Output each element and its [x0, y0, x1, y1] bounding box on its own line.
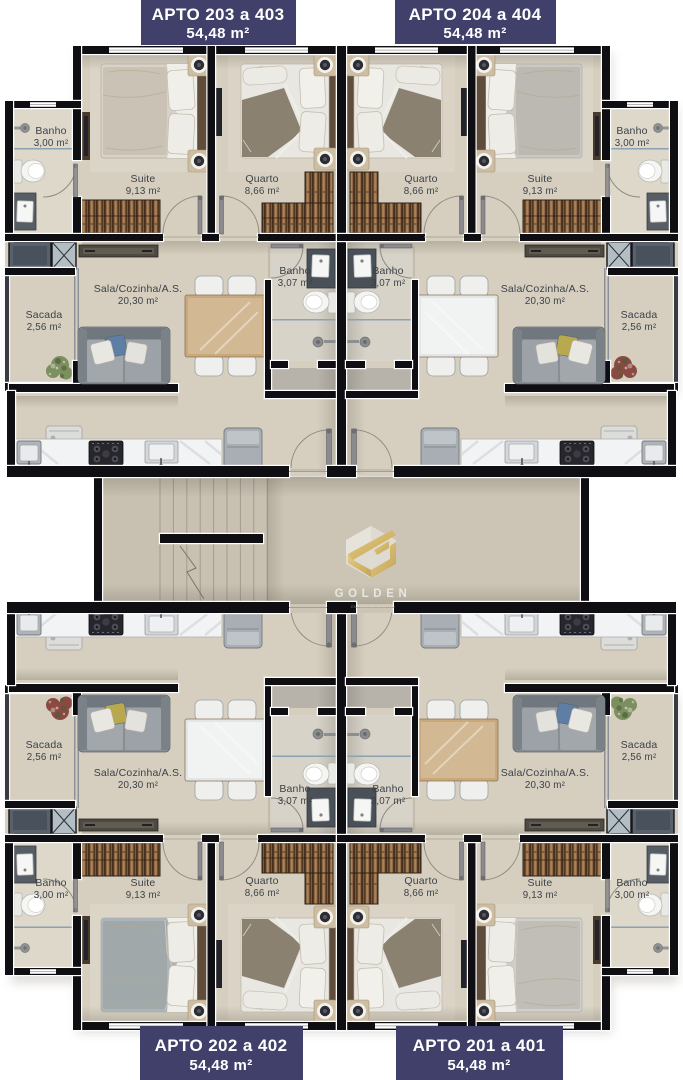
svg-text:20,30 m²: 20,30 m² — [525, 780, 566, 791]
svg-text:9,13 m²: 9,13 m² — [523, 890, 558, 901]
svg-text:Sala/Cozinha/A.S.: Sala/Cozinha/A.S. — [501, 767, 590, 779]
svg-text:3,07 m²: 3,07 m² — [278, 278, 313, 289]
svg-text:Quarto: Quarto — [404, 875, 437, 887]
svg-text:8,66 m²: 8,66 m² — [245, 186, 280, 197]
svg-text:2,56 m²: 2,56 m² — [27, 322, 62, 333]
svg-text:54,48 m²: 54,48 m² — [447, 1057, 510, 1074]
svg-text:APTO 203 a 403: APTO 203 a 403 — [152, 5, 285, 24]
svg-text:3,00 m²: 3,00 m² — [615, 890, 650, 901]
svg-text:3,00 m²: 3,00 m² — [615, 138, 650, 149]
svg-text:54,48 m²: 54,48 m² — [186, 25, 249, 42]
svg-text:Suite: Suite — [528, 173, 553, 185]
svg-text:Suite: Suite — [131, 173, 156, 185]
svg-text:Sala/Cozinha/A.S.: Sala/Cozinha/A.S. — [94, 767, 183, 779]
svg-text:APTO 202 a 402: APTO 202 a 402 — [155, 1036, 288, 1055]
svg-text:20,30 m²: 20,30 m² — [525, 296, 566, 307]
svg-text:3,00 m²: 3,00 m² — [34, 890, 69, 901]
svg-text:Banho: Banho — [616, 125, 647, 137]
svg-text:2,56 m²: 2,56 m² — [622, 752, 657, 763]
svg-text:Sala/Cozinha/A.S.: Sala/Cozinha/A.S. — [94, 283, 183, 295]
svg-text:Sacada: Sacada — [621, 739, 658, 751]
svg-text:2,56 m²: 2,56 m² — [622, 322, 657, 333]
svg-text:Quarto: Quarto — [245, 173, 278, 185]
svg-text:20,30 m²: 20,30 m² — [118, 780, 159, 791]
svg-text:3,07 m²: 3,07 m² — [278, 796, 313, 807]
svg-text:EMPREENDIMENTOS: EMPREENDIMENTOS — [351, 604, 395, 609]
svg-text:Banho: Banho — [372, 265, 403, 277]
svg-text:8,66 m²: 8,66 m² — [245, 888, 280, 899]
svg-text:APTO 204 a 404: APTO 204 a 404 — [409, 5, 542, 24]
svg-text:54,48 m²: 54,48 m² — [189, 1057, 252, 1074]
svg-text:54,48 m²: 54,48 m² — [443, 25, 506, 42]
svg-text:3,07 m²: 3,07 m² — [371, 796, 406, 807]
svg-text:Suite: Suite — [528, 877, 553, 889]
svg-text:20,30 m²: 20,30 m² — [118, 296, 159, 307]
svg-text:Quarto: Quarto — [404, 173, 437, 185]
svg-text:3,07 m²: 3,07 m² — [371, 278, 406, 289]
svg-text:Banho: Banho — [616, 877, 647, 889]
svg-text:Banho: Banho — [35, 877, 66, 889]
svg-text:Banho: Banho — [279, 783, 310, 795]
svg-text:2,56 m²: 2,56 m² — [27, 752, 62, 763]
svg-text:Banho: Banho — [279, 265, 310, 277]
svg-text:Sacada: Sacada — [26, 309, 63, 321]
svg-text:Banho: Banho — [372, 783, 403, 795]
svg-text:Sala/Cozinha/A.S.: Sala/Cozinha/A.S. — [501, 283, 590, 295]
svg-text:GOLDEN: GOLDEN — [335, 588, 412, 600]
svg-text:8,66 m²: 8,66 m² — [404, 186, 439, 197]
svg-text:9,13 m²: 9,13 m² — [126, 890, 161, 901]
svg-text:Sacada: Sacada — [621, 309, 658, 321]
svg-text:APTO 201 a 401: APTO 201 a 401 — [413, 1036, 546, 1055]
svg-text:9,13 m²: 9,13 m² — [523, 186, 558, 197]
svg-text:9,13 m²: 9,13 m² — [126, 186, 161, 197]
svg-text:Sacada: Sacada — [26, 739, 63, 751]
svg-text:Suite: Suite — [131, 877, 156, 889]
svg-text:3,00 m²: 3,00 m² — [34, 138, 69, 149]
svg-text:Banho: Banho — [35, 125, 66, 137]
svg-text:8,66 m²: 8,66 m² — [404, 888, 439, 899]
svg-text:Quarto: Quarto — [245, 875, 278, 887]
